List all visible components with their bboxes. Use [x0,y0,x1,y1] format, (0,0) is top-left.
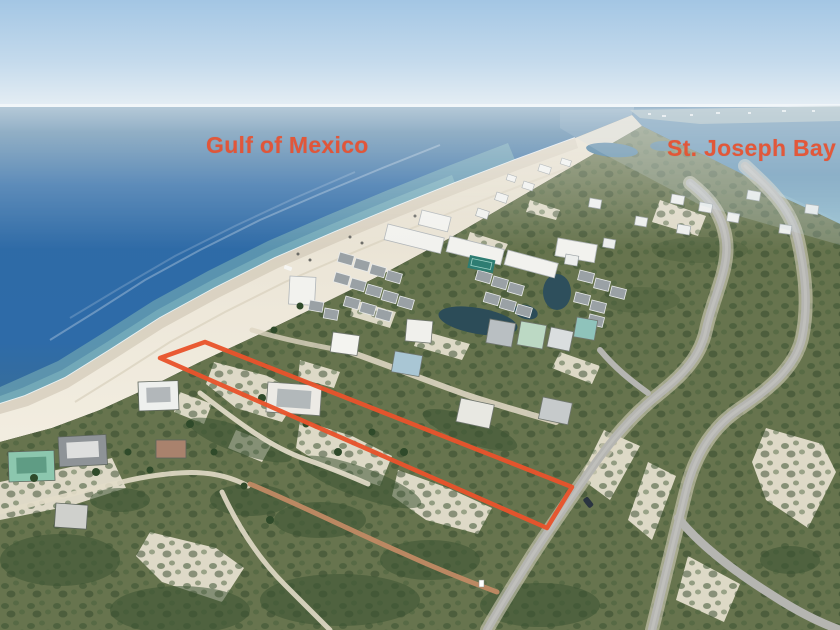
brown-house [156,440,186,458]
house-mint [517,321,547,349]
sky [0,0,840,112]
house [330,332,360,356]
st-joseph-bay-label: St. Joseph Bay [667,135,836,162]
aerial-photo: Gulf of Mexico St. Joseph Bay [0,0,840,630]
sale-sign [479,580,484,587]
house [547,327,574,351]
house-gray-roof [486,319,516,347]
house-blue-roof [391,351,422,377]
pond-2 [543,274,571,310]
aerial-photo-scene [0,0,840,630]
small-gray-house [54,503,88,529]
house-teal [574,317,598,340]
gulf-of-mexico-label: Gulf of Mexico [206,132,369,159]
house [405,319,433,343]
